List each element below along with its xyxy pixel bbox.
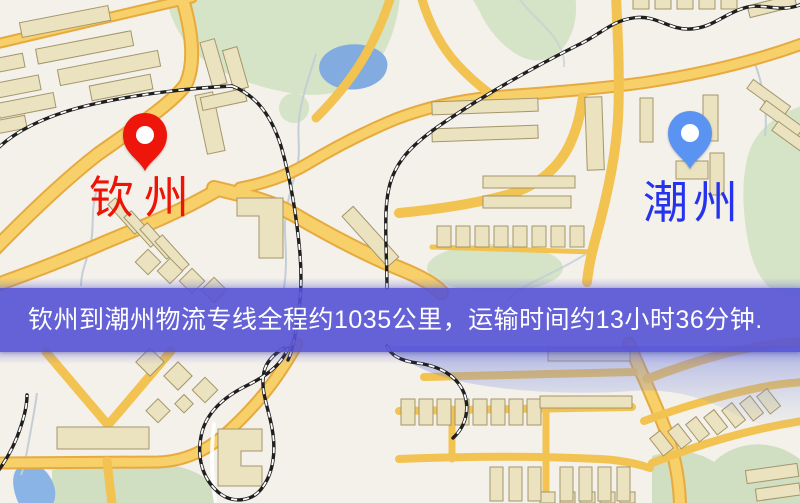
route-info-banner: 钦州到潮州物流专线全程约1035公里，运输时间约13小时36分钟.: [0, 288, 800, 352]
banner-fade-top: [0, 278, 800, 288]
logistics-route-map: 钦州 潮州 钦州到潮州物流专线全程约1035公里，运输时间约13小时36分钟.: [0, 0, 800, 503]
map-background: [0, 0, 800, 503]
destination-pin-icon[interactable]: [662, 107, 718, 171]
destination-pin-label: 潮州: [643, 181, 743, 226]
route-info-text: 钦州到潮州物流专线全程约1035公里，运输时间约13小时36分钟.: [0, 288, 763, 352]
origin-pin-icon[interactable]: [117, 109, 173, 173]
origin-pin-label: 钦州: [89, 176, 199, 221]
banner-fade-bottom: [0, 352, 800, 364]
